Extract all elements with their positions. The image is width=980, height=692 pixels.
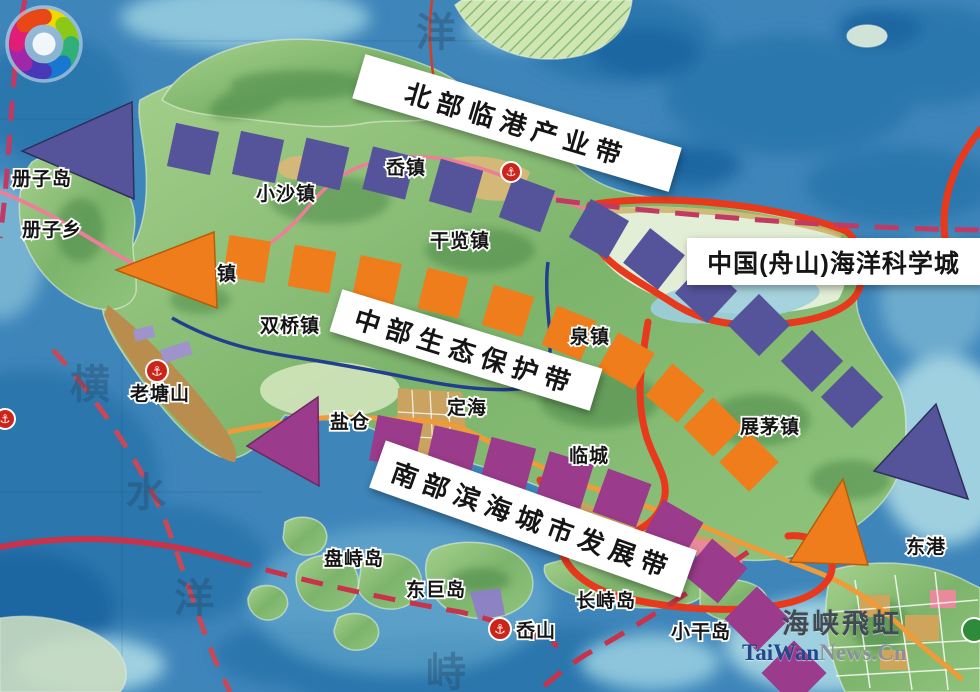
svg-text:⚓: ⚓	[0, 412, 10, 426]
watermark-site: TaiWanNews.Cn	[742, 640, 907, 665]
place-label-changzhi: 长峙岛	[576, 589, 636, 612]
place-label-cezidao: 册子岛	[12, 167, 72, 190]
sea-name: 横	[70, 363, 112, 407]
watermark-site-part1: TaiWan	[742, 640, 819, 665]
sea-name: 洋	[416, 11, 458, 55]
islet-tiny	[847, 25, 887, 47]
road-sign-icon	[962, 618, 980, 642]
place-label-laotangshan: 老塘山	[130, 382, 190, 405]
place-label-zhen: 镇	[217, 262, 237, 285]
place-label-donggang: 东港	[906, 535, 946, 558]
place-label-ganlan: 干览镇	[430, 229, 490, 252]
rainbow-aperture-logo	[0, 0, 88, 88]
science-city-banner-label: 中国(舟山)海洋科学城	[707, 244, 960, 280]
anchor-icon: ⚓	[146, 360, 168, 382]
place-label-zhanmao: 展茅镇	[740, 415, 800, 438]
svg-text:⚓: ⚓	[494, 622, 506, 637]
science-city-banner: 中国(舟山)海洋科学城	[687, 238, 980, 285]
place-label-panzhi: 盘峙岛	[324, 547, 384, 570]
place-label-cezixiang: 册子乡	[22, 219, 82, 241]
watermark-site-part2: News.Cn	[819, 640, 907, 665]
place-label-aoshan: 岙山	[516, 619, 556, 642]
sea-name: 水	[126, 471, 168, 515]
place-label-quan: 泉镇	[569, 325, 610, 348]
place-label-shuangqiao: 双桥镇	[260, 314, 320, 337]
place-label-xiaogan: 小干岛	[671, 620, 731, 643]
anchor-icon: ⚓	[0, 409, 15, 429]
place-label-dinghai: 定海	[447, 396, 487, 419]
islet-3	[248, 585, 288, 620]
svg-text:⚓: ⚓	[151, 364, 163, 379]
watermark-brand: 海峡飛虹	[782, 610, 907, 640]
zhoushan-planning-map: ⚓ ⚓ ⚓ ⚓ 洋 横 水 洋 峙 册子岛 册子乡 小沙镇 岙镇 干览镇 双桥镇…	[0, 0, 980, 692]
anchor-icon: ⚓	[489, 618, 511, 640]
anchor-icon: ⚓	[501, 162, 521, 182]
place-label-lincheng: 临城	[569, 444, 609, 467]
place-label-ao: 岙镇	[386, 156, 426, 179]
place-label-xiaosha: 小沙镇	[256, 182, 316, 205]
watermark: 海峡飛虹 TaiWanNews.Cn	[742, 610, 907, 665]
svg-text:⚓: ⚓	[506, 165, 517, 179]
islet-1	[283, 517, 327, 555]
sea-name: 洋	[174, 577, 216, 621]
place-label-dongju: 东巨岛	[406, 578, 466, 601]
islet-2	[334, 614, 379, 651]
place-label-yancang: 盐仓	[330, 410, 370, 433]
sea-name: 峙	[426, 651, 468, 692]
